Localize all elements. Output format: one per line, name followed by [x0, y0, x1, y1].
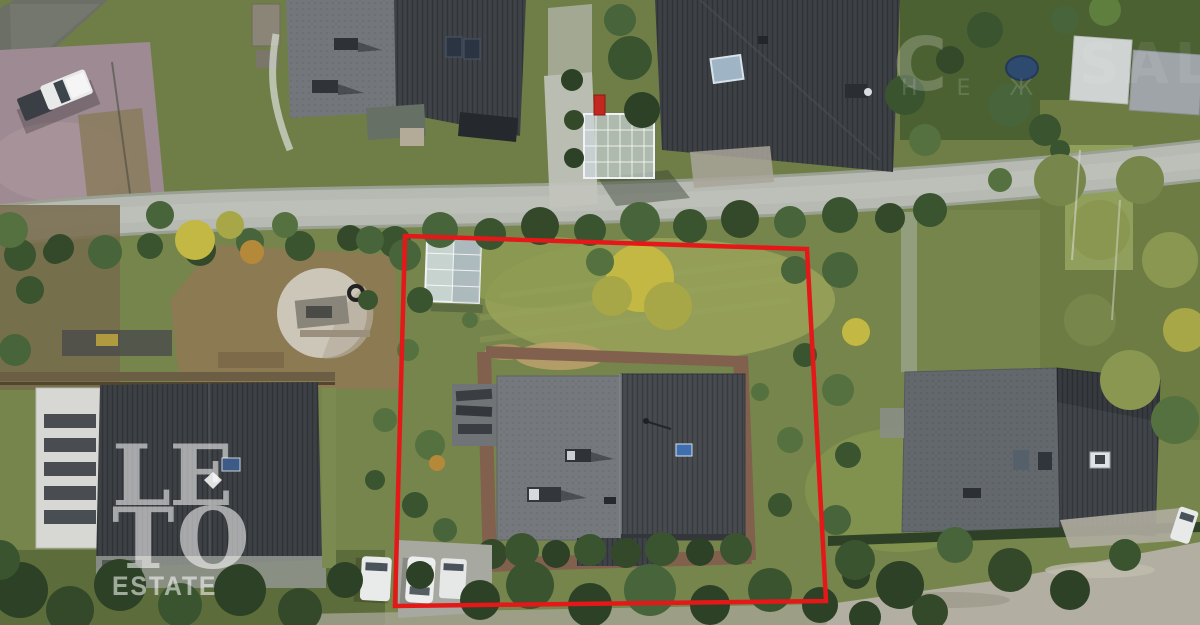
roof-skylight — [1013, 450, 1029, 470]
chimney — [845, 84, 867, 98]
aerial-photo: LE TO ESTATE C SALT Н Е Ж — [0, 0, 1200, 625]
terrace-deck — [452, 384, 500, 446]
greenhouse — [425, 237, 486, 313]
roof-skylight — [710, 55, 743, 83]
roof-skylight — [222, 458, 240, 471]
red-cabinet — [594, 95, 605, 115]
pergola — [880, 408, 904, 438]
main-house-roof — [497, 374, 745, 566]
roof-skylight — [676, 444, 692, 456]
stone-pillar — [400, 128, 424, 146]
top-right-house — [655, 0, 900, 188]
pool-cover — [1006, 56, 1038, 80]
aerial-scene — [0, 0, 1200, 625]
stone-patio — [690, 146, 774, 188]
solar-panel — [446, 37, 462, 57]
chimney — [334, 38, 358, 50]
garden-walkway — [901, 212, 917, 372]
